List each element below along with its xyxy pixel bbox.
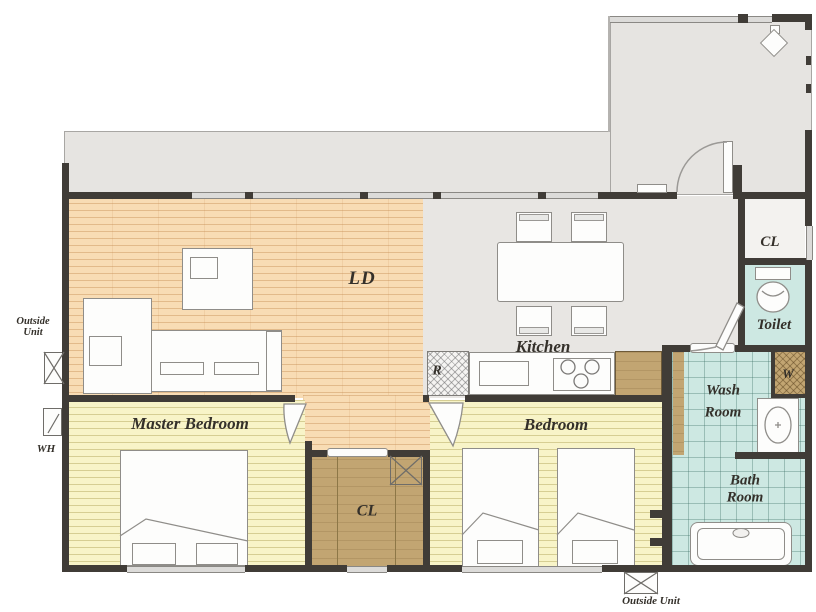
wall bbox=[598, 192, 677, 199]
chair-backrest bbox=[574, 327, 604, 334]
sofa-cushion bbox=[160, 362, 204, 375]
entry-closet-floor bbox=[745, 196, 805, 262]
chair-backrest bbox=[574, 214, 604, 221]
window bbox=[347, 566, 387, 573]
bathroom-line2: Room bbox=[727, 489, 764, 505]
window bbox=[127, 566, 245, 573]
wall-bottom bbox=[62, 565, 127, 572]
wall-kitchen-bottom bbox=[423, 395, 429, 402]
window-mullion bbox=[433, 192, 441, 199]
window-mullion bbox=[360, 192, 368, 199]
room-bedroom-label: Bedroom bbox=[524, 416, 588, 434]
kitchen-stove bbox=[553, 358, 611, 391]
chair-backrest bbox=[519, 327, 549, 334]
window-mullion bbox=[245, 192, 253, 199]
window-mullion bbox=[806, 56, 811, 65]
wall bbox=[62, 192, 192, 199]
bed-pillow bbox=[196, 543, 238, 565]
room-kitchen-label: Kitchen bbox=[516, 338, 571, 356]
outside-unit-left-line1: Outside bbox=[16, 316, 49, 327]
closet-center-label: CL bbox=[357, 504, 377, 521]
floor-plan: Outside Unit WH LD Master Bedroom Kitche… bbox=[0, 0, 816, 612]
dining-chair bbox=[571, 306, 607, 336]
kitchen-sink bbox=[479, 361, 529, 386]
wall-closet-left bbox=[305, 441, 312, 568]
wall-entry-door-side bbox=[733, 165, 742, 199]
room-master-bedroom-label: Master Bedroom bbox=[131, 415, 249, 433]
washroom-line1: Wash bbox=[706, 382, 740, 398]
dining-chair bbox=[516, 306, 552, 336]
wall-toilet-left bbox=[738, 196, 745, 352]
bed-pillow bbox=[477, 540, 523, 564]
wall-bottom bbox=[602, 565, 812, 572]
outside-unit-bottom-box bbox=[624, 572, 658, 594]
wall-kitchen-bottom bbox=[465, 395, 672, 402]
living-table-tray bbox=[190, 257, 218, 279]
chair-backrest bbox=[519, 214, 549, 221]
wall-notch bbox=[650, 510, 662, 518]
bed-pillow bbox=[132, 543, 176, 565]
wall-right bbox=[805, 260, 812, 572]
wall-bottom bbox=[245, 565, 347, 572]
room-washroom-label: Wash Room bbox=[705, 380, 742, 424]
sofa-cushion bbox=[214, 362, 259, 375]
water-heater-label: WH bbox=[37, 444, 55, 456]
sofa-armrest bbox=[266, 331, 282, 391]
outside-unit-left-label: Outside Unit bbox=[16, 316, 49, 338]
closet-entry-label: CL bbox=[760, 235, 779, 251]
window bbox=[748, 16, 772, 23]
window-mullion bbox=[738, 14, 748, 23]
washroom-cabinet-strip bbox=[673, 352, 684, 455]
dining-chair bbox=[516, 212, 552, 242]
room-toilet-label: Toilet bbox=[757, 318, 791, 334]
outside-unit-left-line2: Unit bbox=[23, 327, 42, 338]
corridor-floor bbox=[303, 395, 430, 455]
washroom-sink-counter bbox=[757, 398, 799, 454]
washroom-sliding-door bbox=[690, 343, 735, 353]
water-heater-box bbox=[43, 408, 62, 436]
dining-table bbox=[497, 242, 624, 302]
balcony-area bbox=[64, 131, 612, 195]
room-bathroom-label: Bath Room bbox=[727, 473, 764, 506]
washer-label: W bbox=[782, 367, 794, 381]
window-mullion bbox=[538, 192, 546, 199]
closet-sliding-door bbox=[327, 448, 388, 457]
washroom-line2: Room bbox=[705, 404, 742, 420]
entrance-step bbox=[637, 184, 667, 193]
wall-toilet-top bbox=[738, 258, 812, 265]
closet-divider-line bbox=[337, 452, 338, 566]
wall-master-top bbox=[62, 395, 295, 402]
bathroom-line1: Bath bbox=[730, 473, 760, 489]
entrance-door-leaf bbox=[723, 141, 733, 193]
sofa-pillow bbox=[89, 336, 122, 366]
wall-bath-divider bbox=[735, 452, 805, 459]
bed-pillow bbox=[572, 540, 618, 564]
wall-right bbox=[805, 130, 812, 226]
window bbox=[806, 226, 813, 260]
outside-unit-left-box bbox=[44, 352, 64, 384]
kitchen-cabinet bbox=[615, 351, 662, 396]
bathtub-inner bbox=[697, 528, 785, 560]
room-ld-label: LD bbox=[348, 269, 375, 289]
toilet-tank bbox=[755, 267, 791, 280]
wall-closet-right bbox=[423, 450, 430, 568]
window bbox=[610, 16, 738, 23]
wall-notch bbox=[650, 538, 662, 546]
wall-right bbox=[805, 14, 812, 30]
entry-porch-divider-line bbox=[608, 16, 610, 132]
sofa-main bbox=[151, 330, 282, 392]
wall-washroom-top bbox=[735, 345, 812, 352]
wall-bedroom-right bbox=[662, 348, 672, 572]
window-mullion bbox=[806, 84, 811, 93]
wall-left bbox=[62, 163, 69, 572]
window bbox=[462, 566, 602, 573]
outside-unit-bottom-label: Outside Unit bbox=[622, 596, 680, 608]
dining-chair bbox=[571, 212, 607, 242]
closet-x-box bbox=[390, 456, 422, 485]
refrigerator-label: R bbox=[432, 365, 441, 380]
